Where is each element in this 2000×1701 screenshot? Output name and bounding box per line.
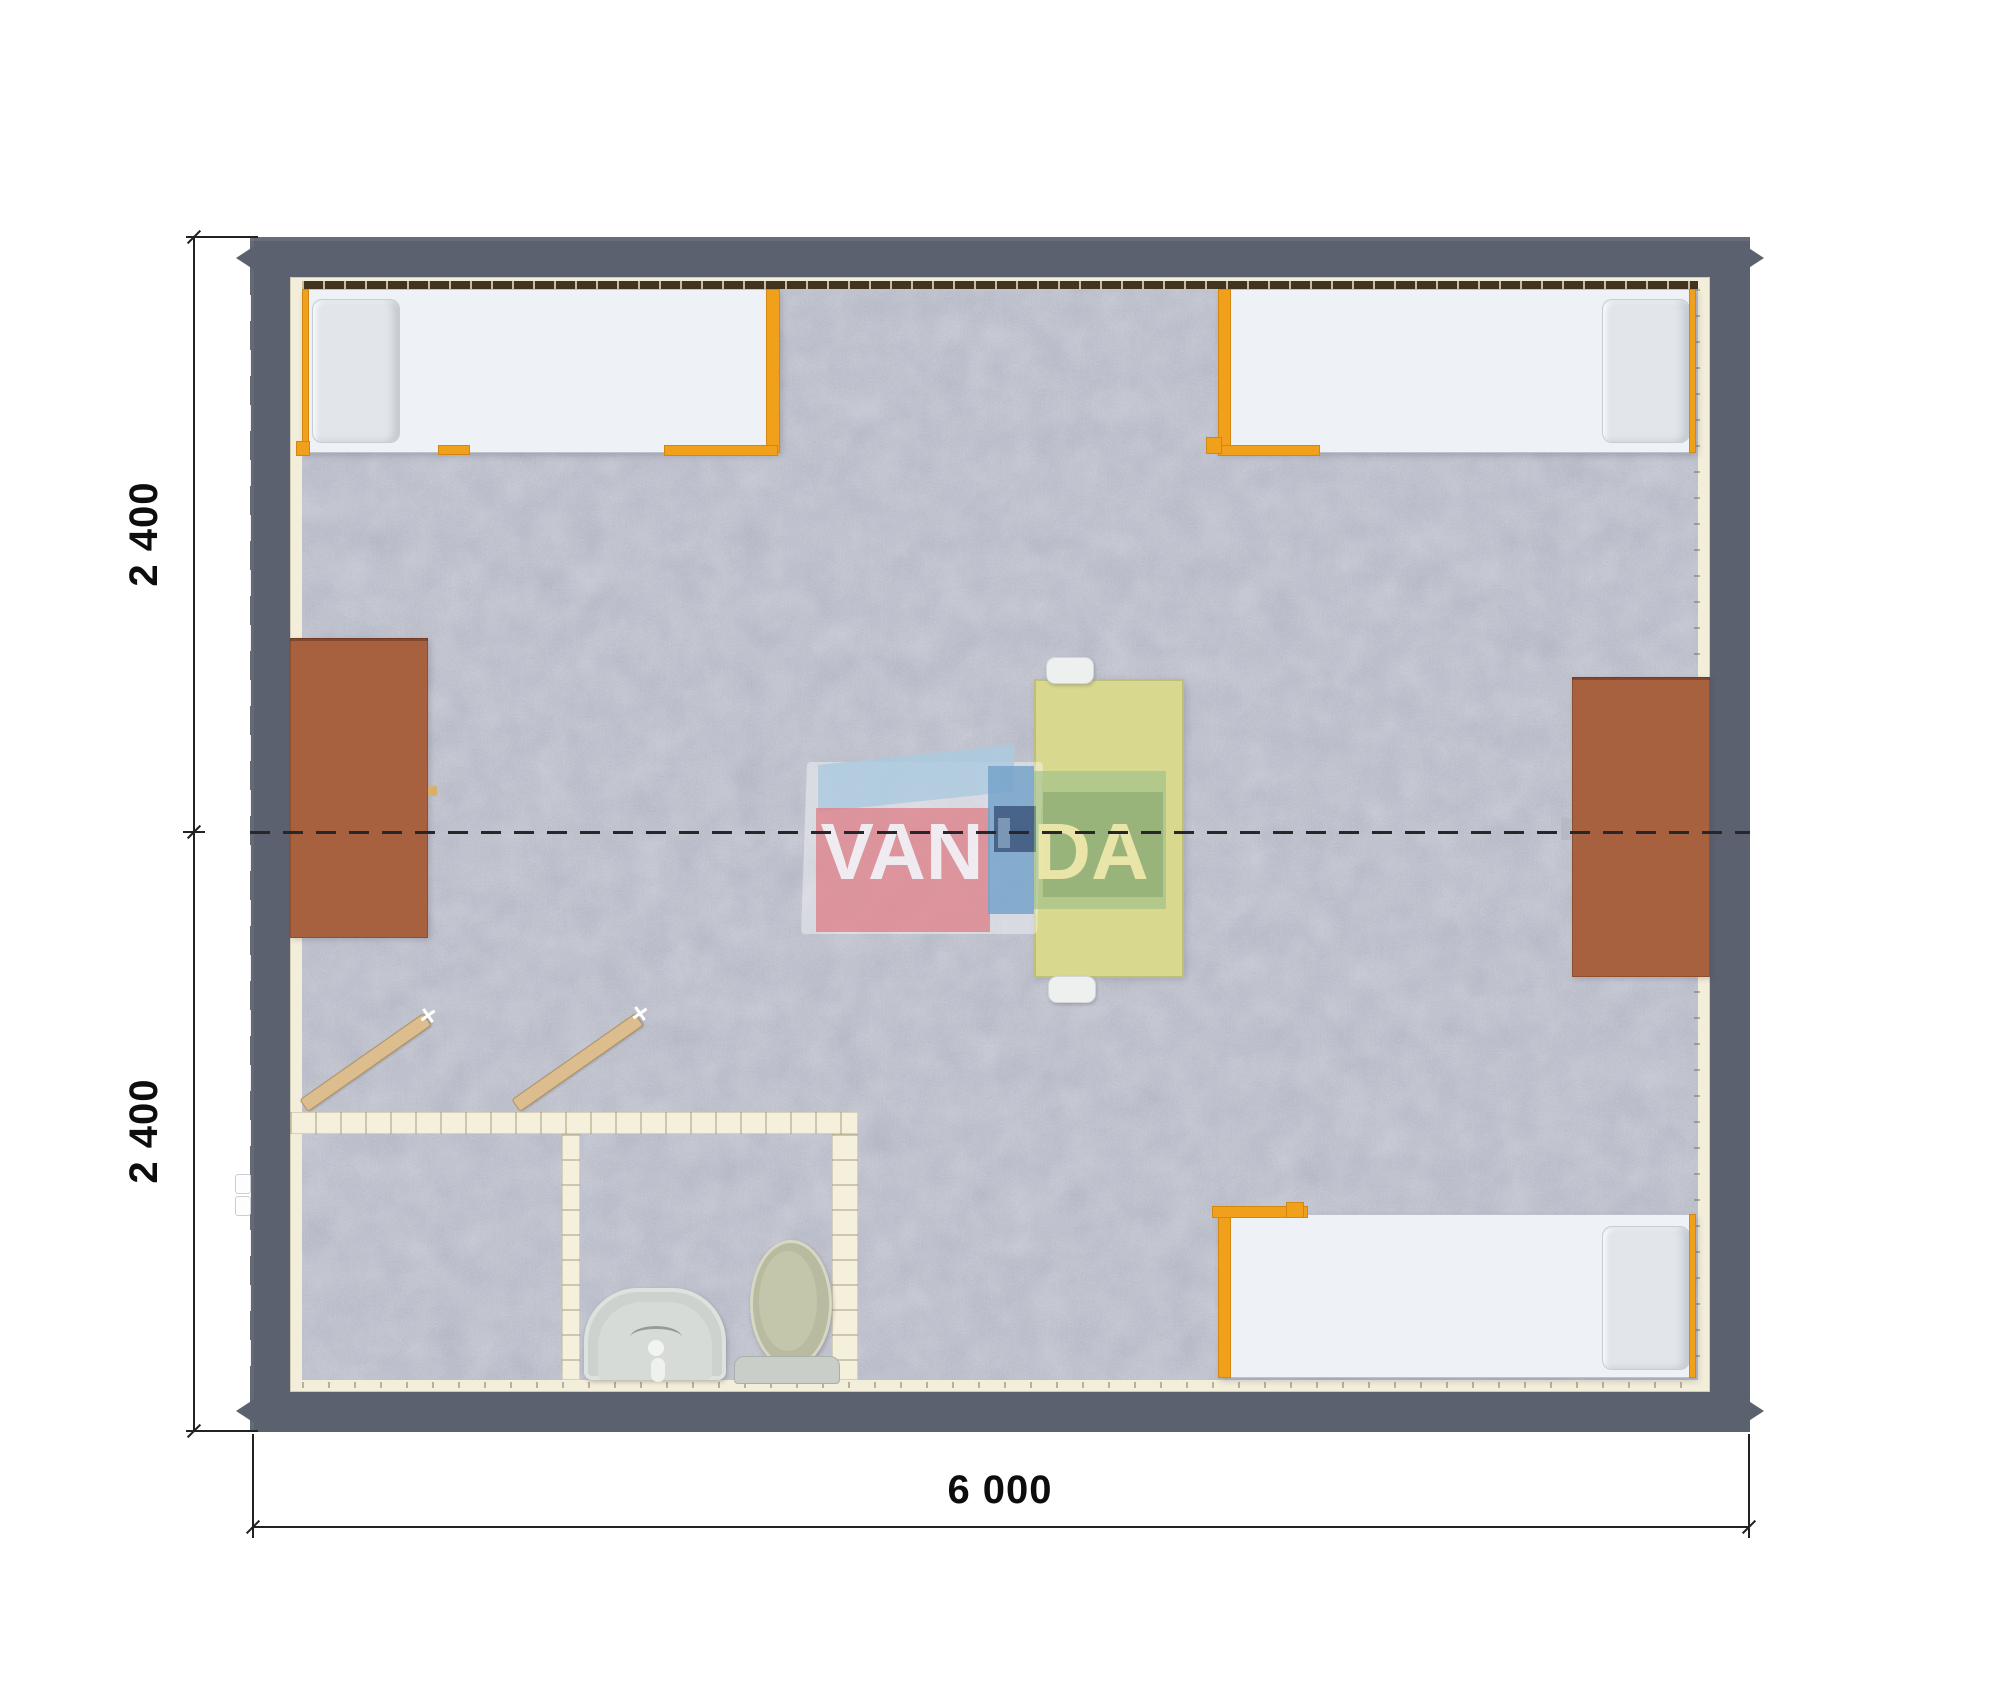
bed-leg <box>1206 437 1222 454</box>
roof-spout-bottom-right-icon <box>1744 1398 1764 1424</box>
bathroom-wall-divider <box>562 1134 580 1380</box>
desk-right <box>1572 677 1710 977</box>
bed-foot-bracket <box>664 445 778 456</box>
toilet-tank <box>734 1356 840 1384</box>
entry-door-hinge-icon <box>235 1196 251 1216</box>
bottom-liner-studs <box>302 1382 1698 1388</box>
bed-leg <box>296 441 310 456</box>
bed-head-rail <box>1689 1214 1696 1378</box>
bed-leg <box>1286 1202 1304 1218</box>
floor-plan-canvas: VAN DA 2 400 2 400 6 000 <box>0 0 2000 1701</box>
stool-south <box>1048 976 1096 1003</box>
desk-left <box>290 638 428 938</box>
stool-north <box>1046 657 1094 684</box>
desk-knob-icon <box>428 786 437 796</box>
top-wall-batten-strip <box>302 281 1698 289</box>
desk-chair-tab <box>1561 818 1572 840</box>
bed-foot-bracket <box>1218 445 1320 456</box>
dimension-label-width: 6 000 <box>850 1470 1150 1510</box>
pillow <box>1602 299 1690 443</box>
bed-head-rail <box>302 289 309 453</box>
bed-top-right <box>1218 289 1696 453</box>
toilet-lid <box>759 1251 817 1351</box>
roof-spout-bottom-left-icon <box>236 1398 256 1424</box>
logo-text-van: VAN <box>810 812 994 892</box>
dimension-label-height-bottom: 2 400 <box>124 1031 176 1231</box>
logo-text-da: DA <box>1028 812 1154 892</box>
extension-line <box>186 236 258 238</box>
washbasin-drain <box>651 1358 665 1382</box>
bed-head-rail <box>1689 289 1696 453</box>
roof-spout-top-left-icon <box>236 245 256 271</box>
entry-door-hinge-icon <box>235 1174 251 1194</box>
roof-spout-top-right-icon <box>1744 245 1764 271</box>
extension-line <box>1748 1434 1750 1538</box>
extension-line <box>186 1430 258 1432</box>
module-joint-dashed-line <box>250 831 1750 834</box>
washbasin-faucet <box>648 1340 664 1356</box>
bathroom-wall-right <box>832 1134 858 1380</box>
bed-foot-rail <box>1218 289 1231 453</box>
pillow <box>1602 1226 1690 1370</box>
bathroom-wall-horizontal <box>290 1112 858 1134</box>
bed-top-left <box>302 289 780 453</box>
dimension-label-height-top: 2 400 <box>124 434 176 634</box>
bed-bottom-right <box>1218 1214 1696 1378</box>
bed-foot-rail <box>1218 1214 1231 1378</box>
pillow <box>312 299 400 443</box>
left-wall-cladding-marks <box>243 295 251 1381</box>
bed-foot-rail <box>766 289 780 453</box>
bed-leg <box>438 445 470 455</box>
extension-line <box>252 1434 254 1538</box>
dimension-line-horizontal <box>253 1526 1749 1528</box>
